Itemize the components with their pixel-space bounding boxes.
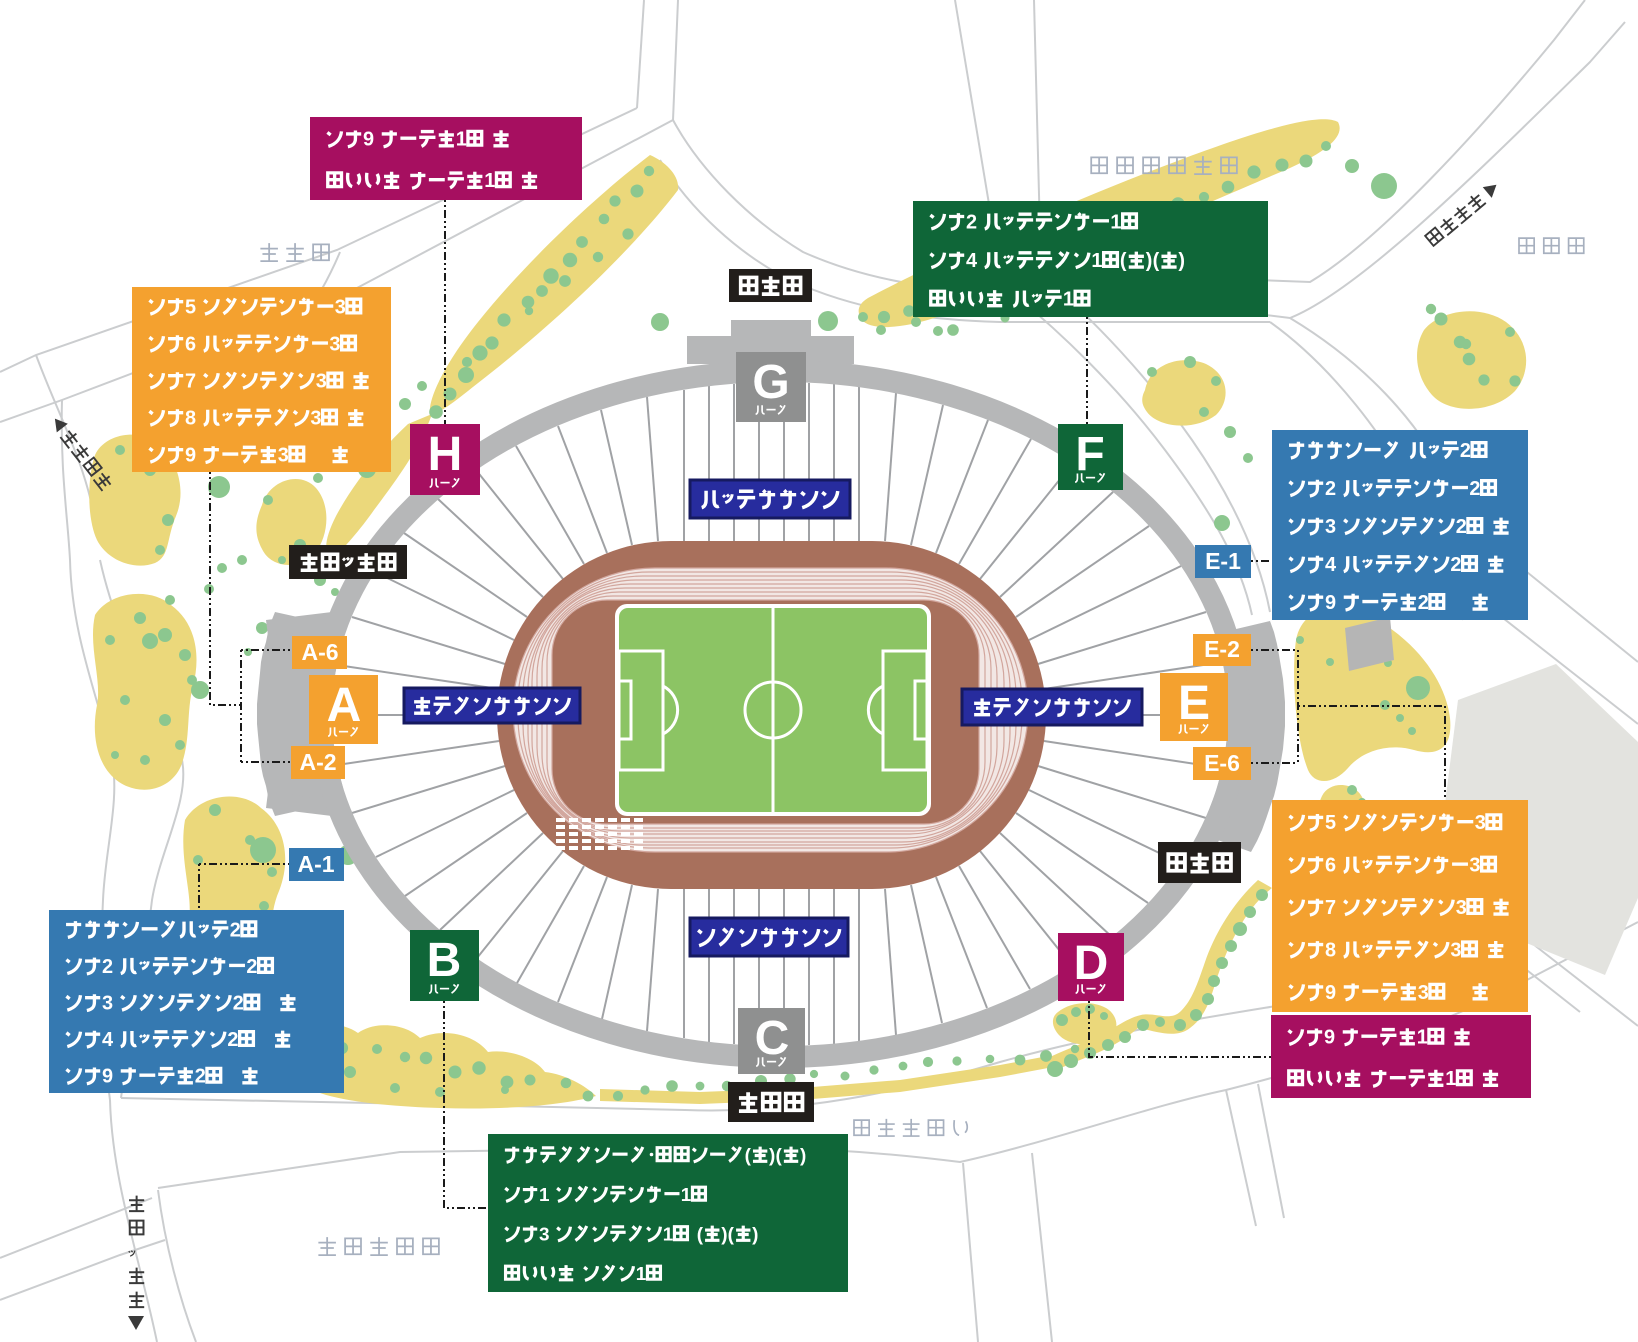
svg-text:B: B [427,934,462,987]
svg-text:1: 1 [1445,1068,1456,1090]
svg-text:(: ( [1153,250,1160,272]
svg-text:6: 6 [1325,855,1336,877]
svg-text:3: 3 [335,297,346,319]
svg-text:3: 3 [1450,939,1461,961]
svg-text:3: 3 [316,371,327,393]
svg-text:9: 9 [1324,1027,1335,1049]
svg-text:9: 9 [185,445,196,467]
svg-text:7: 7 [185,371,196,393]
svg-text:1: 1 [456,129,467,151]
svg-text:7: 7 [1325,897,1336,919]
svg-text:1: 1 [484,170,495,192]
svg-text:2: 2 [1456,516,1467,538]
svg-text:A-2: A-2 [299,749,336,775]
svg-text:A-1: A-1 [297,851,334,877]
svg-text:2: 2 [233,993,244,1015]
svg-text:9: 9 [1325,982,1336,1004]
svg-text:1: 1 [681,1185,692,1206]
svg-text:3: 3 [1469,855,1480,877]
svg-text:): ) [1178,250,1185,272]
svg-text:1: 1 [636,1264,647,1285]
svg-text:3: 3 [329,334,340,356]
svg-text:2: 2 [966,211,977,233]
svg-text:6: 6 [185,334,196,356]
svg-text:3: 3 [102,993,113,1015]
svg-text:9: 9 [363,129,374,151]
svg-text:1: 1 [1417,1027,1428,1049]
svg-text:1: 1 [1091,250,1102,272]
svg-text:3: 3 [1418,982,1429,1004]
svg-text:4: 4 [102,1029,113,1051]
svg-text:3: 3 [310,408,321,430]
svg-text:2: 2 [1469,478,1480,500]
svg-text:H: H [428,428,463,481]
svg-text:): ) [721,1224,727,1245]
svg-text:(: ( [697,1224,704,1245]
svg-text:4: 4 [1325,554,1336,576]
svg-text:3: 3 [278,445,289,467]
svg-text:5: 5 [185,297,196,319]
svg-text:2: 2 [227,1029,238,1051]
svg-text:E-6: E-6 [1204,750,1240,776]
svg-text:): ) [769,1145,775,1166]
svg-text:C: C [755,1012,790,1065]
svg-text:2: 2 [1450,554,1461,576]
svg-text:): ) [752,1224,758,1245]
svg-text:2: 2 [1418,592,1429,614]
svg-text:F: F [1075,428,1104,481]
svg-text:2: 2 [1325,478,1336,500]
svg-text:(: ( [728,1224,735,1245]
svg-text:): ) [1146,250,1153,272]
svg-text:(: ( [1120,250,1127,272]
svg-text:2: 2 [195,1066,206,1088]
svg-text:2: 2 [230,919,241,941]
svg-text:E-1: E-1 [1205,548,1241,574]
svg-text:8: 8 [1325,939,1336,961]
svg-text:1: 1 [539,1185,550,1206]
svg-text:2: 2 [102,956,113,978]
svg-text:E-2: E-2 [1204,636,1240,662]
svg-text:G: G [752,356,789,409]
svg-text:9: 9 [1325,592,1336,614]
svg-text:2: 2 [1460,440,1471,462]
svg-text:4: 4 [966,250,977,272]
svg-text:8: 8 [185,408,196,430]
svg-text:5: 5 [1325,812,1336,834]
svg-text:3: 3 [1325,516,1336,538]
svg-text:A-6: A-6 [301,639,338,665]
svg-text:2: 2 [246,956,257,978]
svg-text:(: ( [745,1145,752,1166]
svg-text:1: 1 [1063,289,1074,311]
svg-text:A: A [327,679,362,732]
svg-text:9: 9 [102,1066,113,1088]
svg-text:E: E [1178,677,1210,730]
svg-text:1: 1 [1110,211,1121,233]
svg-text:3: 3 [539,1224,550,1245]
svg-text:3: 3 [1456,897,1467,919]
svg-text:): ) [800,1145,806,1166]
svg-text:(: ( [776,1145,783,1166]
svg-text:1: 1 [663,1224,674,1245]
svg-text:3: 3 [1475,812,1486,834]
svg-text:D: D [1074,937,1109,990]
